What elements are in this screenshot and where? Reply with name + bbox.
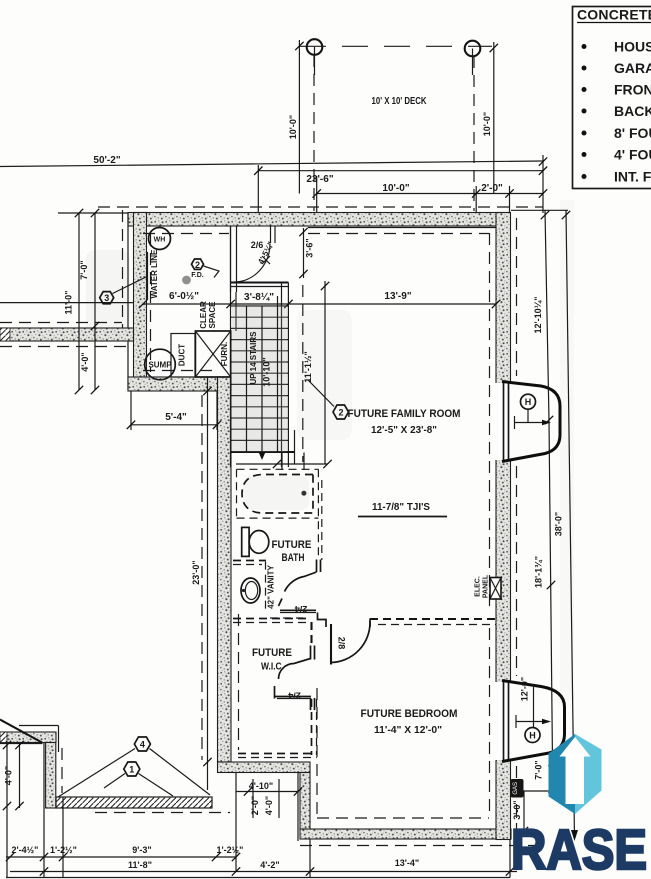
svg-text:2'-0": 2'-0" xyxy=(250,796,260,815)
svg-text:INT. F: INT. F xyxy=(614,169,651,185)
svg-text:11'-0": 11'-0" xyxy=(64,291,74,315)
svg-text:2: 2 xyxy=(338,408,343,418)
svg-text:FUTURE: FUTURE xyxy=(272,539,312,551)
svg-text:42" VANITY: 42" VANITY xyxy=(267,565,276,609)
svg-text:BATH: BATH xyxy=(282,552,305,564)
svg-text:PANEL: PANEL xyxy=(483,574,490,598)
svg-text:FUTURE BEDROOM: FUTURE BEDROOM xyxy=(361,708,458,720)
svg-text:UP 14 STAIRS: UP 14 STAIRS xyxy=(249,331,258,385)
svg-text:H: H xyxy=(529,731,536,741)
svg-text:4'-0": 4'-0" xyxy=(264,796,274,815)
svg-text:1'-2½": 1'-2½" xyxy=(50,845,77,855)
svg-text:2/6: 2/6 xyxy=(251,240,264,250)
svg-text:10'-0": 10'-0" xyxy=(382,183,409,194)
svg-text:WATER LINE: WATER LINE xyxy=(150,249,159,298)
svg-text:FUTURE: FUTURE xyxy=(252,647,292,659)
svg-text:F.D.: F.D. xyxy=(191,272,204,279)
svg-text:11-7/8" TJI'S: 11-7/8" TJI'S xyxy=(372,502,430,513)
svg-text:12'-0": 12'-0" xyxy=(520,677,530,701)
svg-text:RASE: RASE xyxy=(511,818,647,879)
svg-text:12'-5" X 23'-8": 12'-5" X 23'-8" xyxy=(371,425,437,436)
svg-text:2'-0": 2'-0" xyxy=(481,183,503,194)
svg-text:12'-10¼": 12'-10¼" xyxy=(533,297,543,334)
svg-text:3: 3 xyxy=(104,293,109,303)
svg-text:11'-1½": 11'-1½" xyxy=(303,351,313,382)
svg-text:4'-0": 4'-0" xyxy=(80,352,90,371)
svg-text:4' FOU: 4' FOU xyxy=(614,147,651,163)
svg-text:H: H xyxy=(525,397,532,407)
svg-text:4: 4 xyxy=(140,740,145,750)
svg-text:10'-0": 10'-0" xyxy=(288,115,298,139)
svg-text:10'-0": 10'-0" xyxy=(482,112,492,136)
svg-text:4'-2": 4'-2" xyxy=(260,860,279,870)
svg-text:50'-2": 50'-2" xyxy=(93,155,120,166)
svg-text:SUMP: SUMP xyxy=(148,361,172,370)
svg-text:7'-0": 7'-0" xyxy=(79,260,89,279)
svg-text:1'-2½": 1'-2½" xyxy=(217,845,244,855)
svg-text:3'-8¼": 3'-8¼" xyxy=(244,292,274,303)
svg-text:CONCRETE: CONCRETE xyxy=(577,7,651,23)
svg-text:9'-3": 9'-3" xyxy=(132,845,151,855)
svg-text:10'-10": 10'-10" xyxy=(262,357,272,386)
svg-text:5'-4": 5'-4" xyxy=(165,412,187,423)
svg-text:WH: WH xyxy=(154,237,166,244)
svg-text:7'-0": 7'-0" xyxy=(534,760,544,779)
svg-text:HOUSE: HOUSE xyxy=(614,39,651,55)
svg-text:11'-8": 11'-8" xyxy=(128,860,152,870)
svg-text:ELEC.: ELEC. xyxy=(475,576,482,597)
svg-text:13'-9": 13'-9" xyxy=(384,291,411,302)
svg-text:2'-4½": 2'-4½" xyxy=(12,845,39,855)
svg-text:3'-0": 3'-0" xyxy=(512,800,522,819)
svg-text:23'-6": 23'-6" xyxy=(306,174,333,185)
svg-text:38'-0": 38'-0" xyxy=(554,512,564,536)
svg-text:2/8: 2/8 xyxy=(337,637,347,650)
svg-text:FURN.: FURN. xyxy=(220,342,229,366)
svg-text:GARAG: GARAG xyxy=(614,60,651,76)
svg-text:2: 2 xyxy=(195,260,200,270)
svg-text:3'-6": 3'-6" xyxy=(305,238,315,257)
svg-text:8' FOU: 8' FOU xyxy=(614,125,651,141)
svg-text:18'-1¾": 18'-1¾" xyxy=(534,556,544,588)
svg-text:2/4: 2/4 xyxy=(295,604,308,614)
svg-text:SPACE: SPACE xyxy=(208,301,217,329)
svg-text:6'-0½": 6'-0½" xyxy=(169,291,199,302)
svg-text:DUCT: DUCT xyxy=(178,344,187,366)
svg-text:FUTURE FAMILY ROOM: FUTURE FAMILY ROOM xyxy=(348,408,461,420)
svg-text:23'-0": 23'-0" xyxy=(191,560,201,584)
svg-text:GAS: GAS xyxy=(513,782,519,795)
svg-text:11'-4" X 12'-0": 11'-4" X 12'-0" xyxy=(374,725,442,736)
svg-text:BACK: BACK xyxy=(614,103,651,119)
svg-text:2/4: 2/4 xyxy=(288,691,301,701)
svg-text:1: 1 xyxy=(129,765,134,775)
svg-text:CLEAR: CLEAR xyxy=(199,301,208,329)
svg-text:4'-10": 4'-10" xyxy=(249,781,273,791)
svg-text:FRONT: FRONT xyxy=(614,82,651,98)
svg-text:10' X 10' DECK: 10' X 10' DECK xyxy=(372,96,428,107)
svg-text:13'-4": 13'-4" xyxy=(395,858,419,868)
svg-text:4'-0": 4'-0" xyxy=(4,766,14,785)
